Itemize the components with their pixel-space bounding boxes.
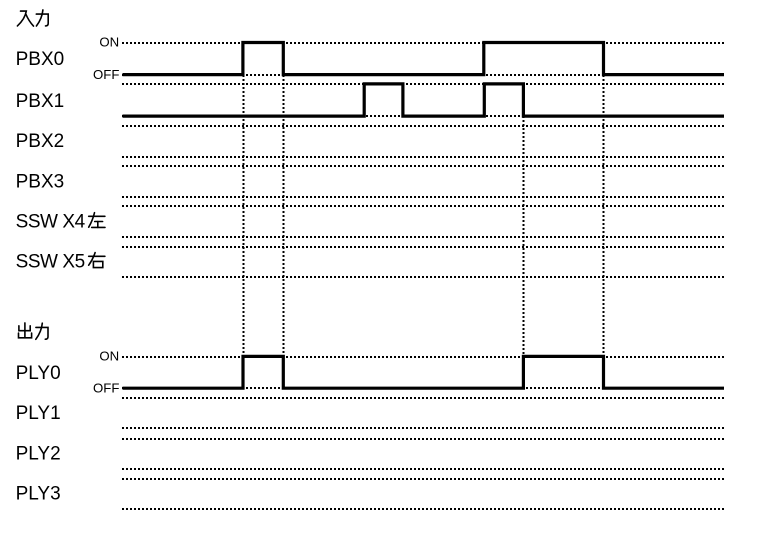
svg-text:PBX2: PBX2 [16, 131, 65, 152]
svg-text:ON: ON [99, 35, 119, 50]
svg-text:PLY3: PLY3 [16, 484, 61, 505]
svg-text:SSW X4: SSW X4 [16, 211, 86, 232]
svg-text:PBX3: PBX3 [16, 171, 65, 192]
svg-text:PBX1: PBX1 [16, 91, 65, 112]
svg-text:PLY0: PLY0 [16, 363, 61, 384]
svg-text:ON: ON [99, 349, 119, 364]
svg-text:OFF: OFF [93, 380, 119, 395]
svg-text:PLY2: PLY2 [16, 443, 61, 464]
svg-text:SSW X5: SSW X5 [16, 251, 85, 272]
svg-text:PLY1: PLY1 [16, 403, 61, 424]
svg-text:OFF: OFF [93, 67, 119, 82]
svg-text:PBX0: PBX0 [16, 49, 65, 70]
